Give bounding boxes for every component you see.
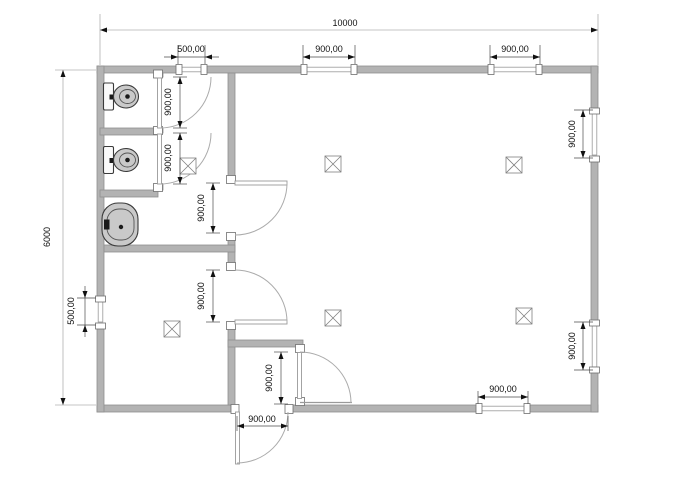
dim-label-top-right-window: 900,00 xyxy=(501,44,529,54)
dim-overall-height: 6000 xyxy=(42,70,96,405)
x-symbol xyxy=(325,156,341,172)
dim-left-window: 500,00 xyxy=(66,286,96,337)
dim-lobby-door: 900,00 xyxy=(264,352,288,404)
dim-label-left-window: 500,00 xyxy=(66,297,76,325)
x-symbol xyxy=(164,321,180,337)
door-inner-room xyxy=(227,263,288,330)
exterior-walls xyxy=(97,66,598,412)
window-bottom-900 xyxy=(476,404,530,414)
window-right-lower-900 xyxy=(590,320,600,373)
window-right-upper-900 xyxy=(590,108,600,162)
dim-label-stall2-door: 900,00 xyxy=(163,144,173,172)
window-left-500 xyxy=(96,296,106,329)
dim-top-center-window: 900,00 xyxy=(303,44,355,64)
dim-label-inner-room-door: 900,00 xyxy=(196,282,206,310)
dim-label-top-left-window: 500,00 xyxy=(177,44,205,54)
dim-label-exterior-door: 900,00 xyxy=(248,414,276,424)
dim-top-right-window: 900,00 xyxy=(490,44,540,64)
dim-label-stall1-door: 900,00 xyxy=(163,88,173,116)
toilet-1 xyxy=(104,83,139,110)
dim-bottom-window: 900,00 xyxy=(478,384,528,404)
toilet-2 xyxy=(104,147,139,174)
dim-inner-room-door: 900,00 xyxy=(196,270,220,322)
door-lobby xyxy=(296,345,353,406)
x-symbol xyxy=(325,310,341,326)
floor-plan-canvas: 10000 6000 500,00 900,00 900,00 xyxy=(0,0,700,485)
dim-label-bottom-window: 900,00 xyxy=(489,384,517,394)
dim-right-upper-window: 900,00 xyxy=(567,110,593,158)
window-top-center-900 xyxy=(301,65,357,75)
dim-stall1-door: 900,00 xyxy=(163,77,187,128)
sink xyxy=(102,203,138,246)
dim-label-lobby-door: 900,00 xyxy=(264,364,274,392)
window-top-right-900 xyxy=(488,65,542,75)
x-symbol xyxy=(516,308,532,324)
x-symbol xyxy=(506,157,522,173)
dim-wc-entry-door: 900,00 xyxy=(196,183,220,233)
dim-label-right-lower-window: 900,00 xyxy=(567,332,577,360)
window-top-left-500 xyxy=(176,65,207,75)
dim-label-top-center-window: 900,00 xyxy=(315,44,343,54)
door-wc-entry xyxy=(227,176,288,241)
dim-label-wc-entry-door: 900,00 xyxy=(196,194,206,222)
dim-label-right-upper-window: 900,00 xyxy=(567,120,577,148)
x-symbol xyxy=(180,158,196,174)
floor-plan-page: 10000 6000 500,00 900,00 900,00 xyxy=(0,0,700,485)
dim-exterior-door: 900,00 xyxy=(237,414,288,431)
dim-label-overall-height: 6000 xyxy=(42,227,52,247)
dim-top-left-window: 500,00 xyxy=(164,44,219,64)
dim-label-overall-width: 10000 xyxy=(332,18,357,28)
dim-right-lower-window: 900,00 xyxy=(567,322,593,370)
